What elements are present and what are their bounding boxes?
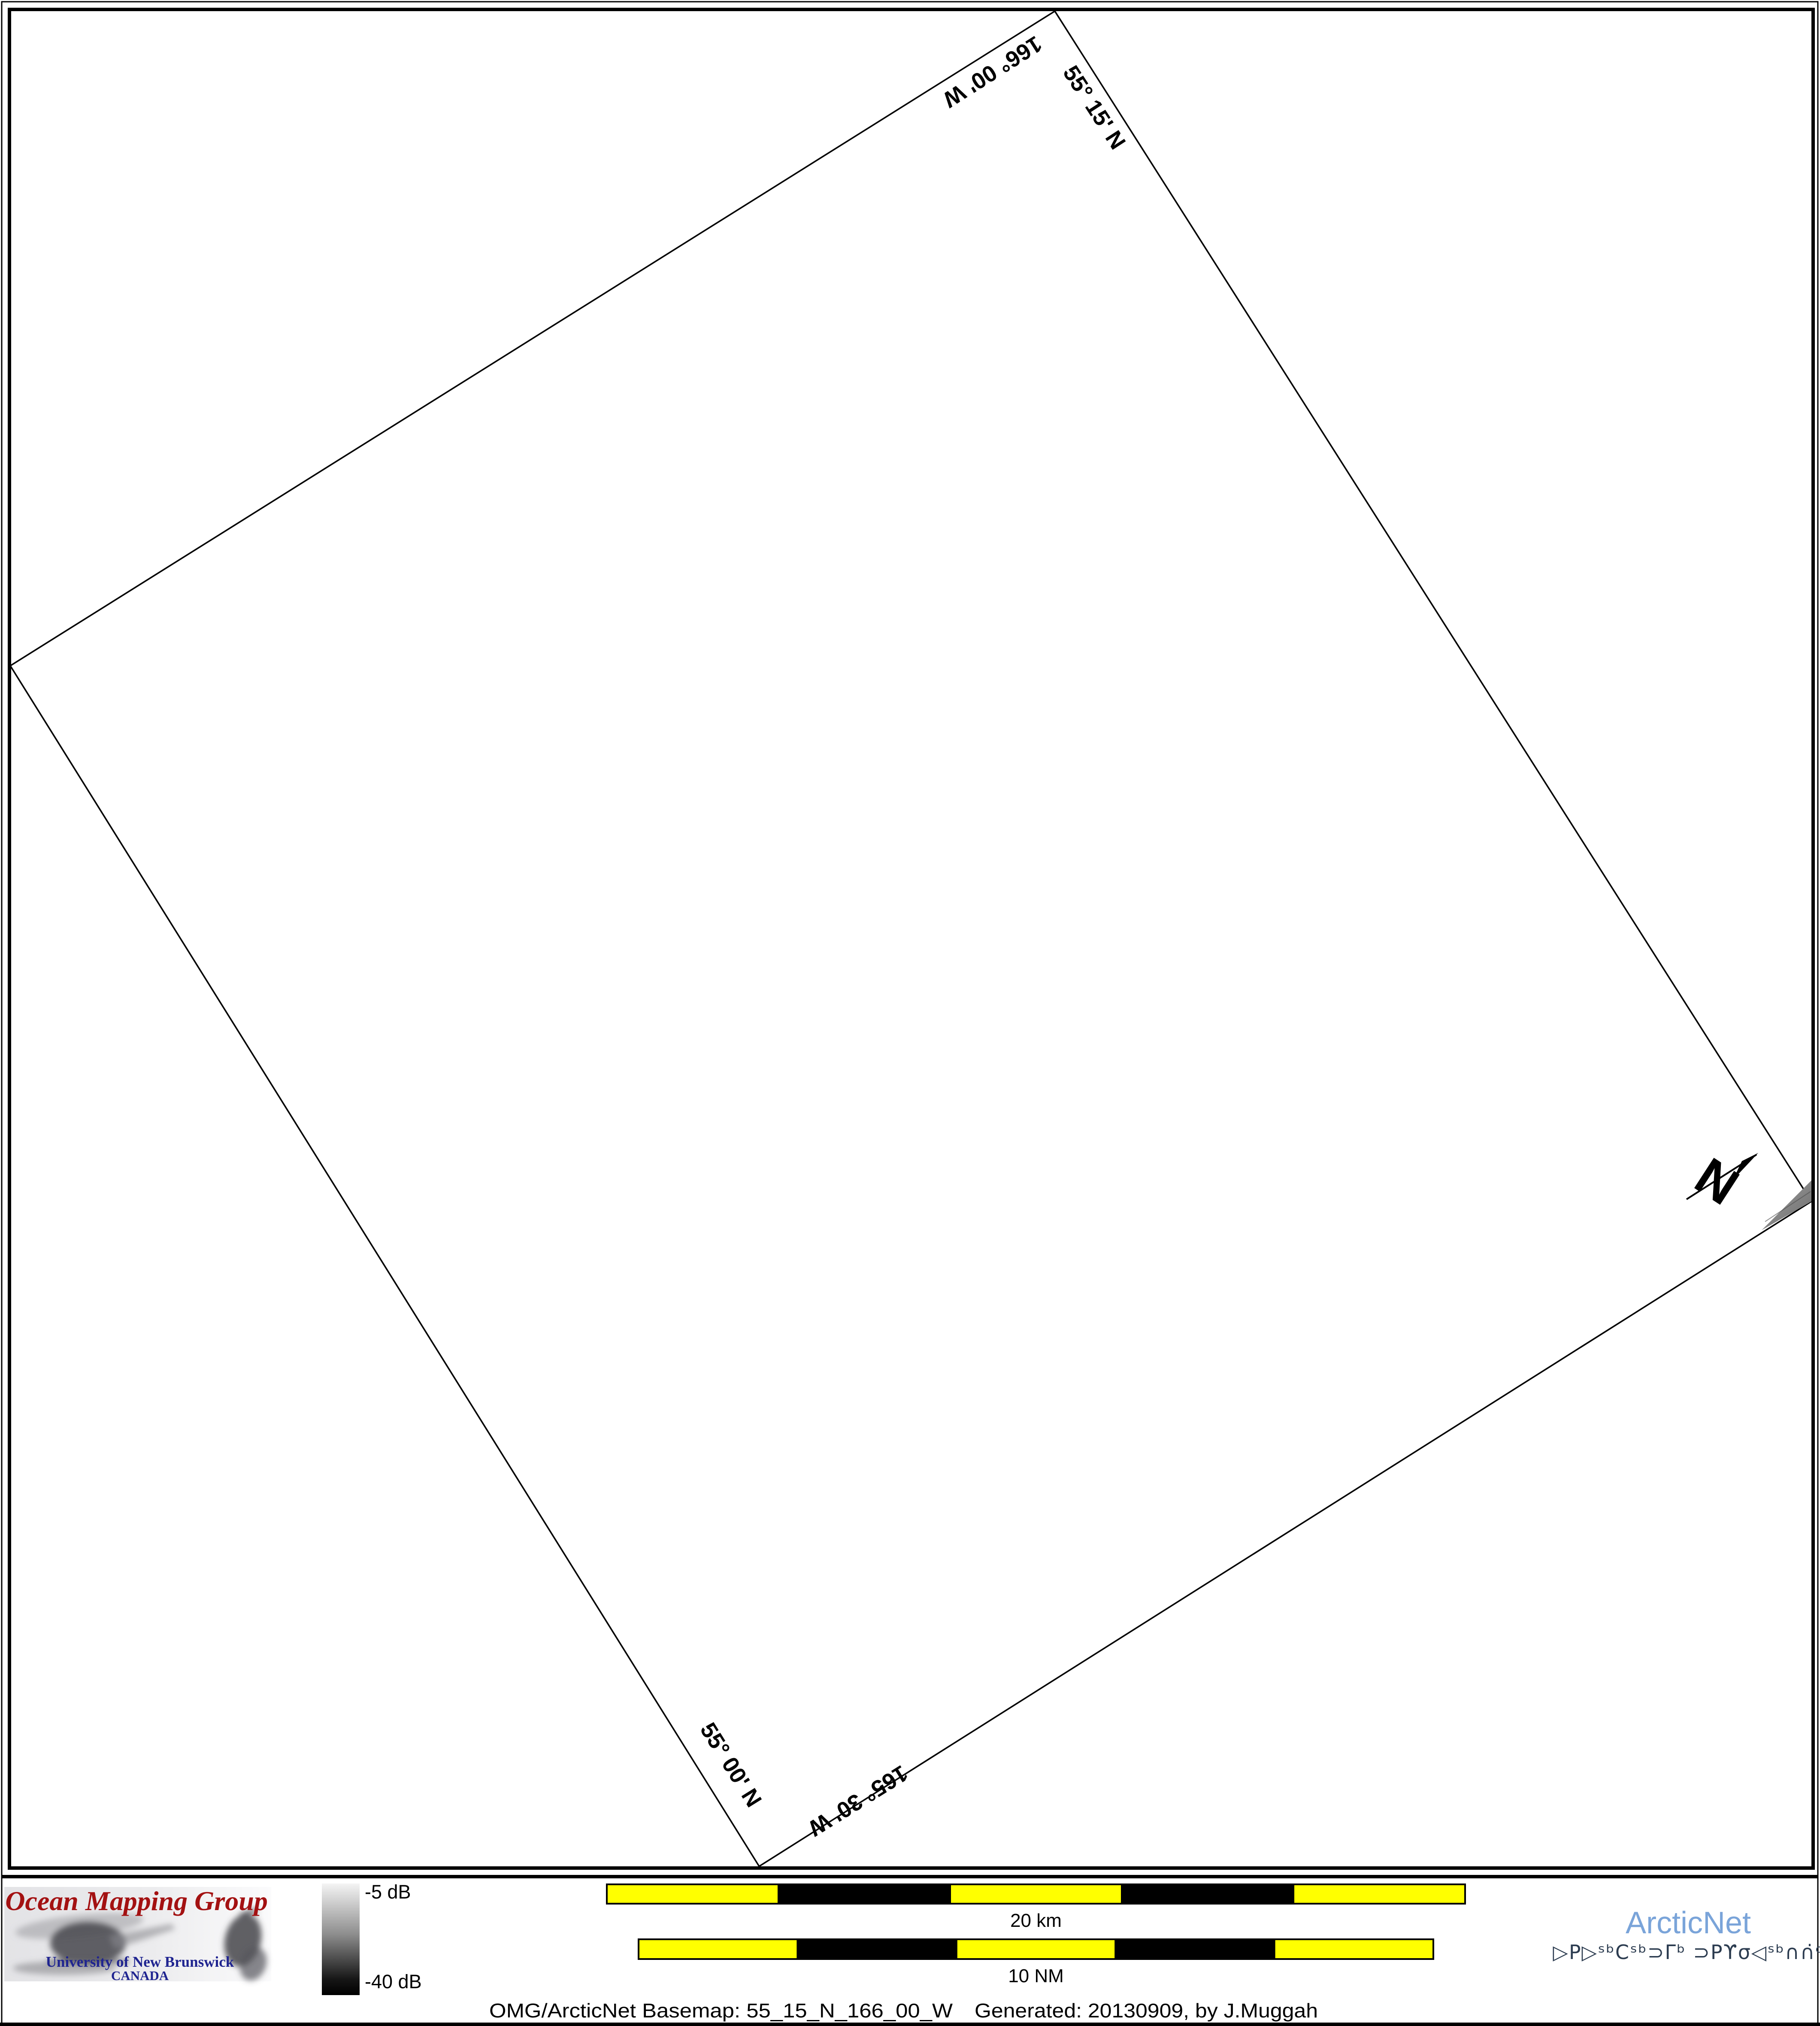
caption: OMG/ArcticNet Basemap: 55_15_N_166_00_W … [489,1999,1318,2022]
arcticnet-inuktitut-text: ▷P▷ˢᵇCˢᵇ⊃Γᵇ ⊃Pϒσ◁ˢᵇ∩∩̇ᶜ [1553,1941,1820,1964]
bottom-edge-bar [0,2023,1820,2026]
omg-logo-country: CANADA [111,1968,169,1983]
omg-logo-title: Ocean Mapping Group [5,1886,268,1916]
scalebar-nm-segment [797,1939,956,1959]
arcticnet-wordmark: ArcticNet [1626,1906,1751,1940]
scalebar-nm-segment [1115,1939,1274,1959]
caption-generated: Generated: 20130909, by J.Muggah [975,1999,1318,2022]
scalebar-nm-body [639,1939,1433,1959]
colorbar-max-label: -5 dB [365,1881,411,1903]
scalebar-km-segment [1122,1884,1293,1904]
scalebar-nm-label: 10 NM [1008,1965,1064,1987]
colorbar-min-label: -40 dB [365,1971,422,1993]
omg-logo: Ocean Mapping Group University of New Br… [4,1886,271,1984]
footer-divider-line [2,1875,1818,1878]
scalebar-km-body [607,1884,1465,1904]
colorbar-gradient [322,1883,360,1995]
basemap-canvas: 166° 00' W 55° 15' N 55° 00' N 165° 30' … [0,0,1820,2026]
caption-basemap-id: OMG/ArcticNet Basemap: 55_15_N_166_00_W [489,1999,953,2022]
scalebar-km-segment [778,1884,950,1904]
scalebar-km-label: 20 km [1010,1910,1062,1931]
basemap-sheet: 166° 00' W 55° 15' N 55° 00' N 165° 30' … [0,0,1820,2026]
